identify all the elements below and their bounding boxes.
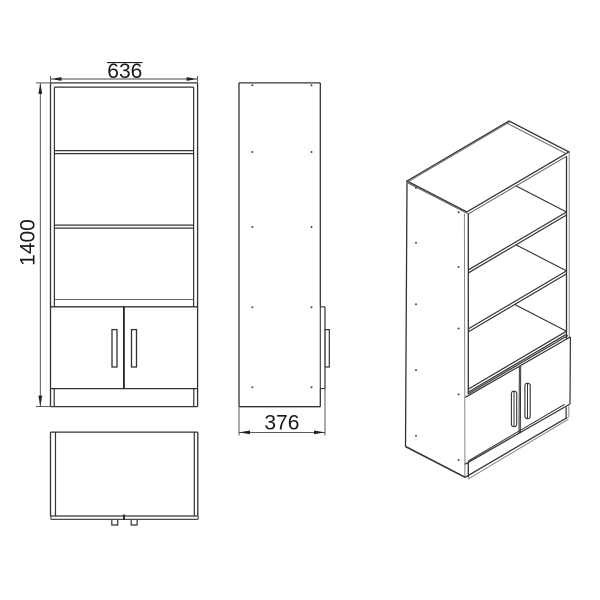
svg-text:376: 376 [264, 412, 299, 435]
svg-text:1400: 1400 [16, 219, 39, 266]
svg-text:636: 636 [107, 60, 142, 83]
